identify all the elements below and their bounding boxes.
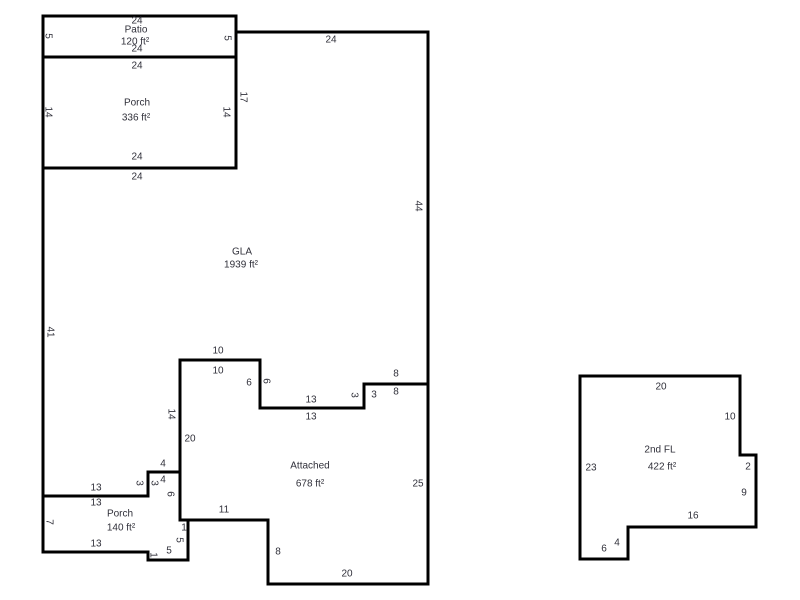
dimension-label: 4 bbox=[160, 459, 166, 470]
dimension-label: 13 bbox=[90, 498, 101, 509]
dimension-label: 4 bbox=[160, 475, 166, 486]
dimension-label: 8 bbox=[275, 547, 281, 558]
dimension-label: 13 bbox=[305, 412, 316, 423]
dimension-label: 8 bbox=[393, 369, 399, 380]
dimension-label: 10 bbox=[212, 346, 223, 357]
dimension-label: 6 bbox=[165, 491, 176, 497]
dimension-label: 3 bbox=[134, 480, 145, 486]
dimension-label: 24 bbox=[131, 172, 142, 183]
dimension-label: 44 bbox=[413, 200, 424, 211]
gla-name-label: GLA bbox=[232, 247, 252, 258]
attached-outline bbox=[180, 360, 428, 584]
dimension-label: 41 bbox=[45, 326, 56, 337]
second-floor-area-label: 422 ft² bbox=[648, 462, 676, 473]
porch-336-area-label: 336 ft² bbox=[122, 113, 150, 124]
dimension-label: 6 bbox=[246, 378, 252, 389]
attached-area-label: 678 ft² bbox=[296, 479, 324, 490]
dimension-label: 6 bbox=[601, 544, 607, 555]
dimension-label: 25 bbox=[412, 479, 423, 490]
dimension-label: 24 bbox=[131, 16, 142, 27]
dimension-label: 24 bbox=[131, 61, 142, 72]
dimension-label: 3 bbox=[149, 480, 160, 486]
dimension-label: 11 bbox=[219, 505, 229, 516]
dimension-label: 1 bbox=[148, 552, 159, 558]
dimension-label: 13 bbox=[90, 539, 101, 550]
dimension-label: 6 bbox=[261, 378, 272, 384]
gla-area-label: 1939 ft² bbox=[224, 260, 258, 271]
dimension-label: 24 bbox=[131, 152, 142, 163]
dimension-label: 14 bbox=[221, 106, 232, 117]
dimension-label: 4 bbox=[614, 538, 620, 549]
dimension-label: 23 bbox=[585, 463, 596, 474]
porch-140-area-label: 140 ft² bbox=[107, 523, 135, 534]
dimension-label: 5 bbox=[166, 546, 172, 557]
dimension-label: 13 bbox=[90, 483, 101, 494]
dimension-label: 9 bbox=[741, 488, 747, 499]
porch-140-name-label: Porch bbox=[107, 509, 133, 520]
dimension-label: 3 bbox=[371, 390, 377, 401]
dimension-label: 17 bbox=[238, 91, 249, 102]
dimension-label: 14 bbox=[166, 408, 177, 419]
second-floor-name-label: 2nd FL bbox=[644, 445, 675, 456]
dimension-label: 20 bbox=[655, 382, 666, 393]
dimension-label: 8 bbox=[393, 387, 399, 398]
dimension-label: 3 bbox=[349, 392, 360, 398]
dimension-label: 10 bbox=[212, 366, 223, 377]
attached-name-label: Attached bbox=[290, 461, 329, 472]
dimension-label: 20 bbox=[184, 434, 195, 445]
dimension-label: 7 bbox=[44, 519, 55, 525]
dimension-label: 14 bbox=[43, 106, 54, 117]
dimension-label: 5 bbox=[43, 33, 54, 39]
dimension-label: 1 bbox=[181, 523, 187, 534]
dimension-label: 5 bbox=[222, 35, 233, 41]
dimension-label: 5 bbox=[174, 537, 185, 543]
dimension-label: 20 bbox=[341, 569, 352, 580]
dimension-label: 24 bbox=[325, 35, 336, 46]
floorplan-sketch: Patio120 ft²Porch336 ft²GLA1939 ft²Attac… bbox=[0, 0, 800, 600]
dimension-label: 2 bbox=[745, 462, 751, 473]
dimension-label: 10 bbox=[724, 412, 735, 423]
dimension-label: 16 bbox=[687, 511, 698, 522]
dimension-label: 24 bbox=[131, 44, 142, 55]
dimension-label: 13 bbox=[305, 395, 316, 406]
porch-336-name-label: Porch bbox=[124, 98, 150, 109]
